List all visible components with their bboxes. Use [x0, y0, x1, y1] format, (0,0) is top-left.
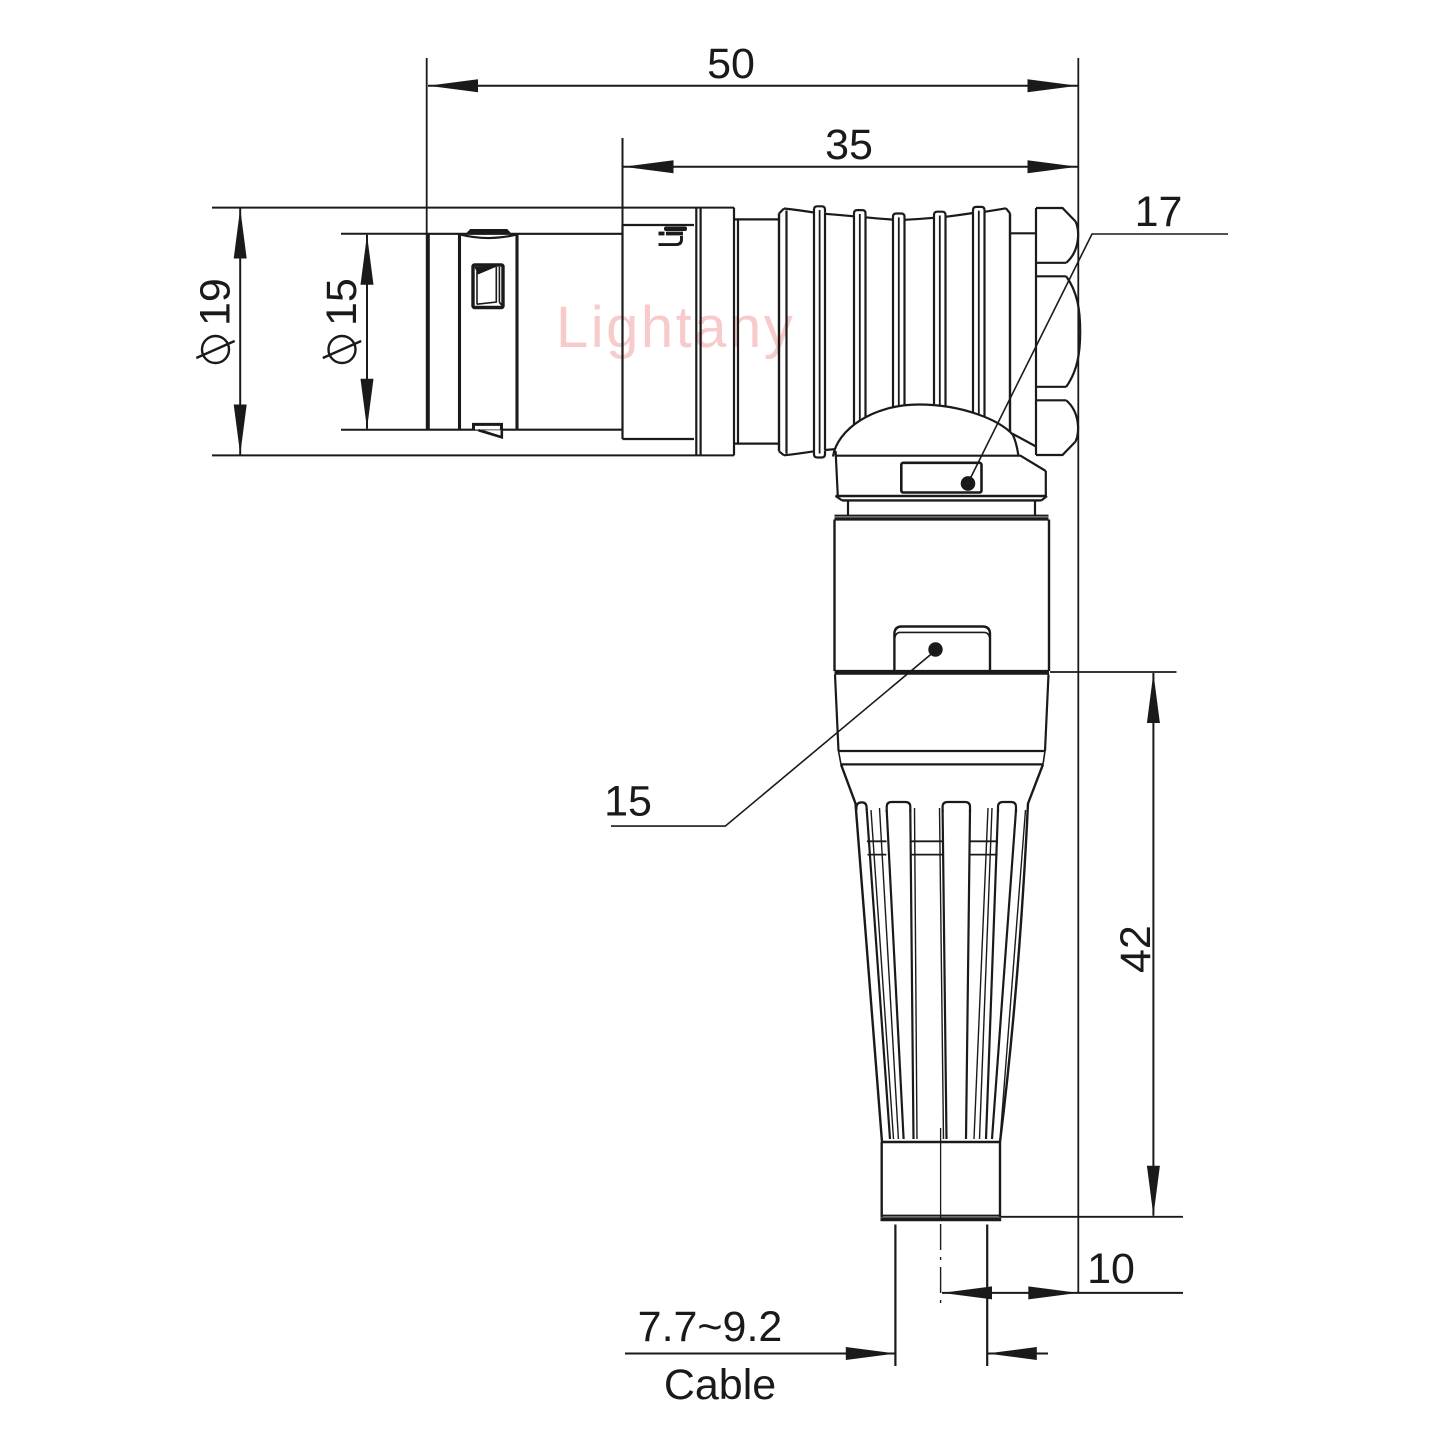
svg-text:Cable: Cable: [664, 1361, 776, 1409]
svg-text:15: 15: [318, 278, 366, 326]
svg-text:7.7~9.2: 7.7~9.2: [638, 1303, 783, 1351]
svg-text:17: 17: [1135, 188, 1183, 236]
svg-text:10: 10: [1087, 1245, 1135, 1293]
svg-text:19: 19: [192, 278, 240, 326]
svg-text:Lightany: Lightany: [556, 295, 795, 360]
svg-text:35: 35: [825, 121, 873, 169]
svg-text:42: 42: [1112, 925, 1160, 973]
svg-text:15: 15: [604, 778, 652, 826]
svg-text:50: 50: [707, 40, 755, 88]
